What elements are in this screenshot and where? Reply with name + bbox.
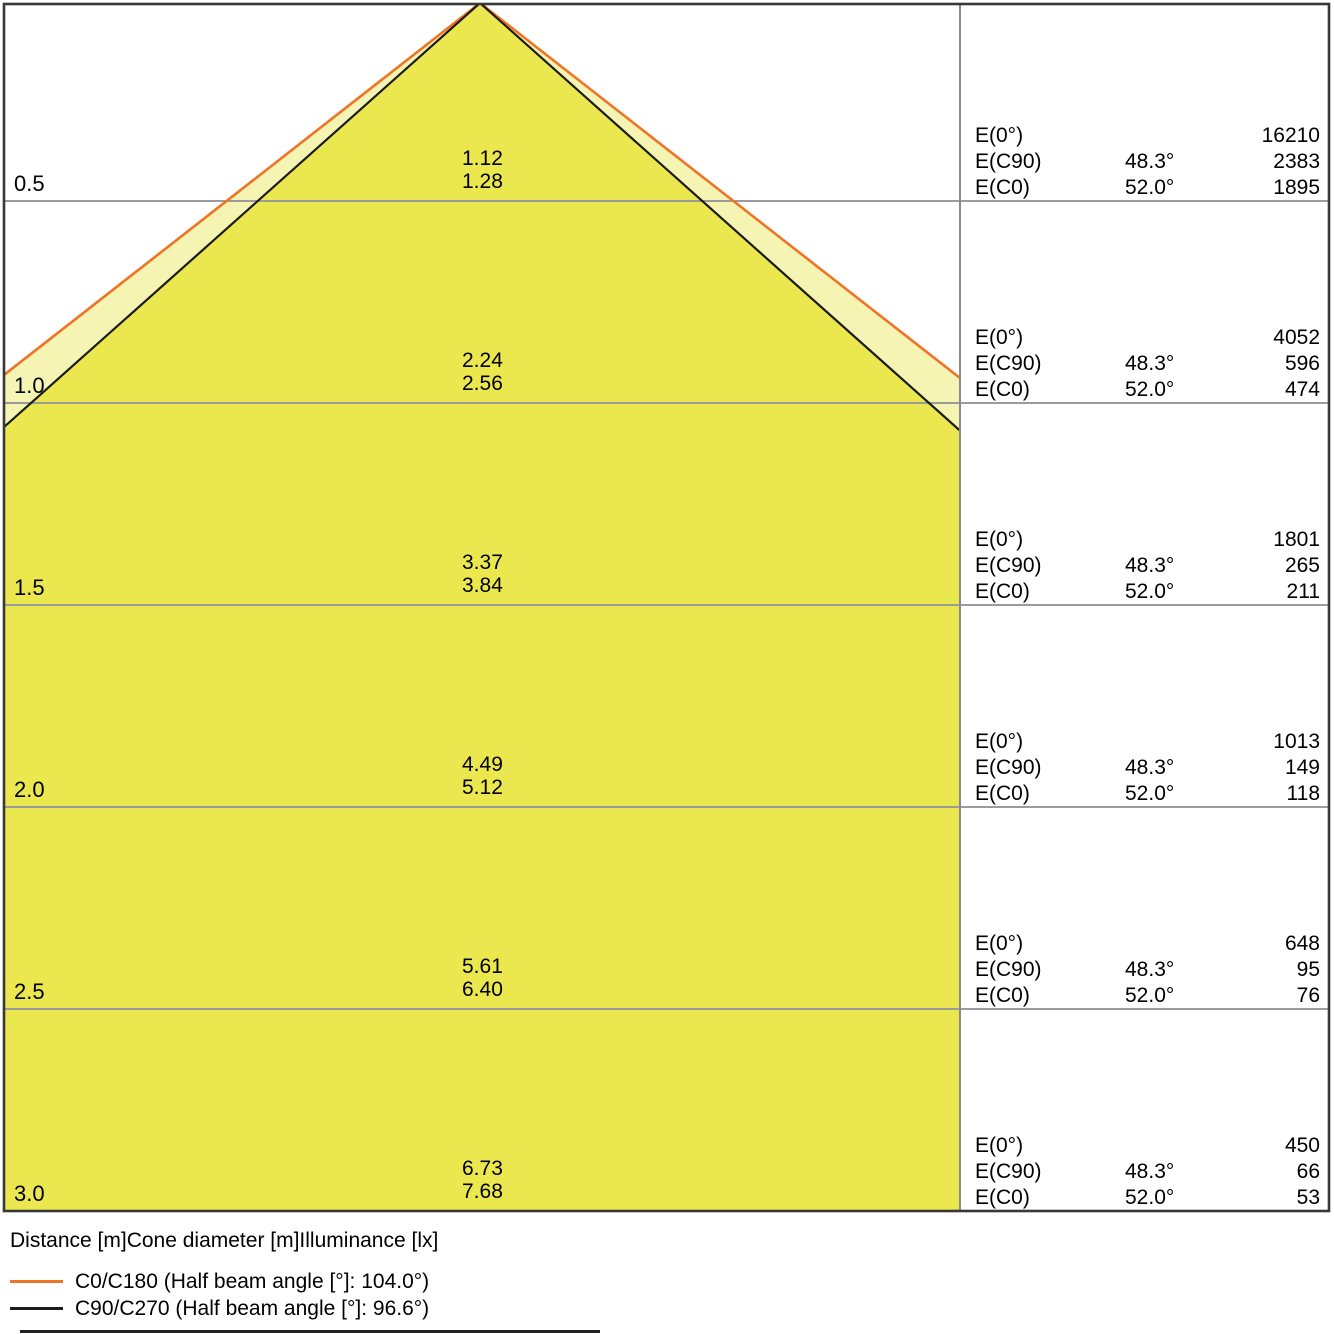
ec90-angle: 48.3°	[1125, 553, 1230, 579]
distance-label: 3.0	[14, 1181, 45, 1207]
ec0-label: E(C0)	[975, 983, 1125, 1009]
ec0-angle: 52.0°	[1125, 781, 1230, 807]
ec90-label: E(C90)	[975, 1159, 1125, 1185]
e0-value: 1801	[1230, 527, 1320, 553]
ec0-value: 211	[1230, 579, 1320, 605]
distance-label: 2.0	[14, 777, 45, 803]
distance-label: 1.5	[14, 575, 45, 601]
e0-angle	[1125, 729, 1230, 755]
e0-value: 16210	[1230, 123, 1320, 149]
cone-diameter-c90: 1.12	[462, 147, 503, 170]
cone-diameter-values: 2.24 2.56	[462, 349, 503, 395]
ec0-label: E(C0)	[975, 175, 1125, 201]
legend-line-c90-swatch	[10, 1307, 63, 1310]
cone-diameter-values: 3.37 3.84	[462, 551, 503, 597]
ec90-value: 596	[1230, 351, 1320, 377]
cone-diameter-c0: 5.12	[462, 776, 503, 799]
ec0-angle: 52.0°	[1125, 579, 1230, 605]
cone-diameter-c90: 5.61	[462, 955, 503, 978]
distance-label: 2.5	[14, 979, 45, 1005]
illuminance-table-row: E(0°)450 E(C90)48.3°66 E(C0)52.0°53	[975, 1133, 1320, 1211]
e0-angle	[1125, 1133, 1230, 1159]
ec0-label: E(C0)	[975, 781, 1125, 807]
illuminance-table-row: E(0°)4052 E(C90)48.3°596 E(C0)52.0°474	[975, 325, 1320, 403]
ec0-angle: 52.0°	[1125, 175, 1230, 201]
ec90-label: E(C90)	[975, 957, 1125, 983]
legend-label-c0: C0/C180 (Half beam angle [°]: 104.0°)	[75, 1270, 429, 1294]
ec90-value: 66	[1230, 1159, 1320, 1185]
legend-line-c0-swatch	[10, 1280, 63, 1283]
e0-angle	[1125, 123, 1230, 149]
ec90-angle: 48.3°	[1125, 149, 1230, 175]
e0-angle	[1125, 325, 1230, 351]
ec0-value: 474	[1230, 377, 1320, 403]
cone-diameter-c0: 6.40	[462, 978, 503, 1001]
ec90-angle: 48.3°	[1125, 1159, 1230, 1185]
legend-label-c90: C90/C270 (Half beam angle [°]: 96.6°)	[75, 1297, 429, 1321]
ec90-value: 2383	[1230, 149, 1320, 175]
ec90-angle: 48.3°	[1125, 755, 1230, 781]
ec0-value: 118	[1230, 781, 1320, 807]
ec0-angle: 52.0°	[1125, 983, 1230, 1009]
distance-label: 0.5	[14, 171, 45, 197]
light-cone-diagram-page: 0.5 1.12 1.28 E(0°)16210 E(C90)48.3°2383…	[0, 0, 1334, 1334]
e0-label: E(0°)	[975, 325, 1125, 351]
illuminance-table-row: E(0°)16210 E(C90)48.3°2383 E(C0)52.0°189…	[975, 123, 1320, 201]
ec0-label: E(C0)	[975, 1185, 1125, 1211]
cone-diameter-c0: 2.56	[462, 372, 503, 395]
e0-label: E(0°)	[975, 123, 1125, 149]
e0-label: E(0°)	[975, 729, 1125, 755]
cone-diameter-c90: 4.49	[462, 753, 503, 776]
ec0-value: 1895	[1230, 175, 1320, 201]
ec0-value: 53	[1230, 1185, 1320, 1211]
ec0-angle: 52.0°	[1125, 1185, 1230, 1211]
cone-diameter-values: 5.61 6.40	[462, 955, 503, 1001]
e0-angle	[1125, 931, 1230, 957]
ec90-value: 95	[1230, 957, 1320, 983]
cone-diameter-c0: 3.84	[462, 574, 503, 597]
ec90-label: E(C90)	[975, 553, 1125, 579]
ec0-label: E(C0)	[975, 579, 1125, 605]
e0-angle	[1125, 527, 1230, 553]
ec0-value: 76	[1230, 983, 1320, 1009]
cone-diameter-c0: 7.68	[462, 1180, 503, 1203]
cone-diameter-values: 4.49 5.12	[462, 753, 503, 799]
illuminance-table-row: E(0°)648 E(C90)48.3°95 E(C0)52.0°76	[975, 931, 1320, 1009]
ec90-label: E(C90)	[975, 149, 1125, 175]
distance-label: 1.0	[14, 373, 45, 399]
e0-label: E(0°)	[975, 931, 1125, 957]
axis-caption: Distance [m]Cone diameter [m]Illuminance…	[10, 1229, 438, 1253]
truncated-bottom-rule	[20, 1330, 600, 1333]
ec90-value: 149	[1230, 755, 1320, 781]
ec0-angle: 52.0°	[1125, 377, 1230, 403]
ec90-angle: 48.3°	[1125, 351, 1230, 377]
e0-label: E(0°)	[975, 1133, 1125, 1159]
ec0-label: E(C0)	[975, 377, 1125, 403]
ec90-value: 265	[1230, 553, 1320, 579]
ec90-angle: 48.3°	[1125, 957, 1230, 983]
e0-value: 648	[1230, 931, 1320, 957]
cone-diameter-c90: 2.24	[462, 349, 503, 372]
cone-diameter-c90: 6.73	[462, 1157, 503, 1180]
e0-value: 450	[1230, 1133, 1320, 1159]
e0-value: 4052	[1230, 325, 1320, 351]
ec90-label: E(C90)	[975, 755, 1125, 781]
cone-diameter-values: 6.73 7.68	[462, 1157, 503, 1203]
cone-diameter-c90: 3.37	[462, 551, 503, 574]
ec90-label: E(C90)	[975, 351, 1125, 377]
e0-label: E(0°)	[975, 527, 1125, 553]
illuminance-table-row: E(0°)1801 E(C90)48.3°265 E(C0)52.0°211	[975, 527, 1320, 605]
cone-diameter-values: 1.12 1.28	[462, 147, 503, 193]
e0-value: 1013	[1230, 729, 1320, 755]
illuminance-table-row: E(0°)1013 E(C90)48.3°149 E(C0)52.0°118	[975, 729, 1320, 807]
cone-diameter-c0: 1.28	[462, 170, 503, 193]
